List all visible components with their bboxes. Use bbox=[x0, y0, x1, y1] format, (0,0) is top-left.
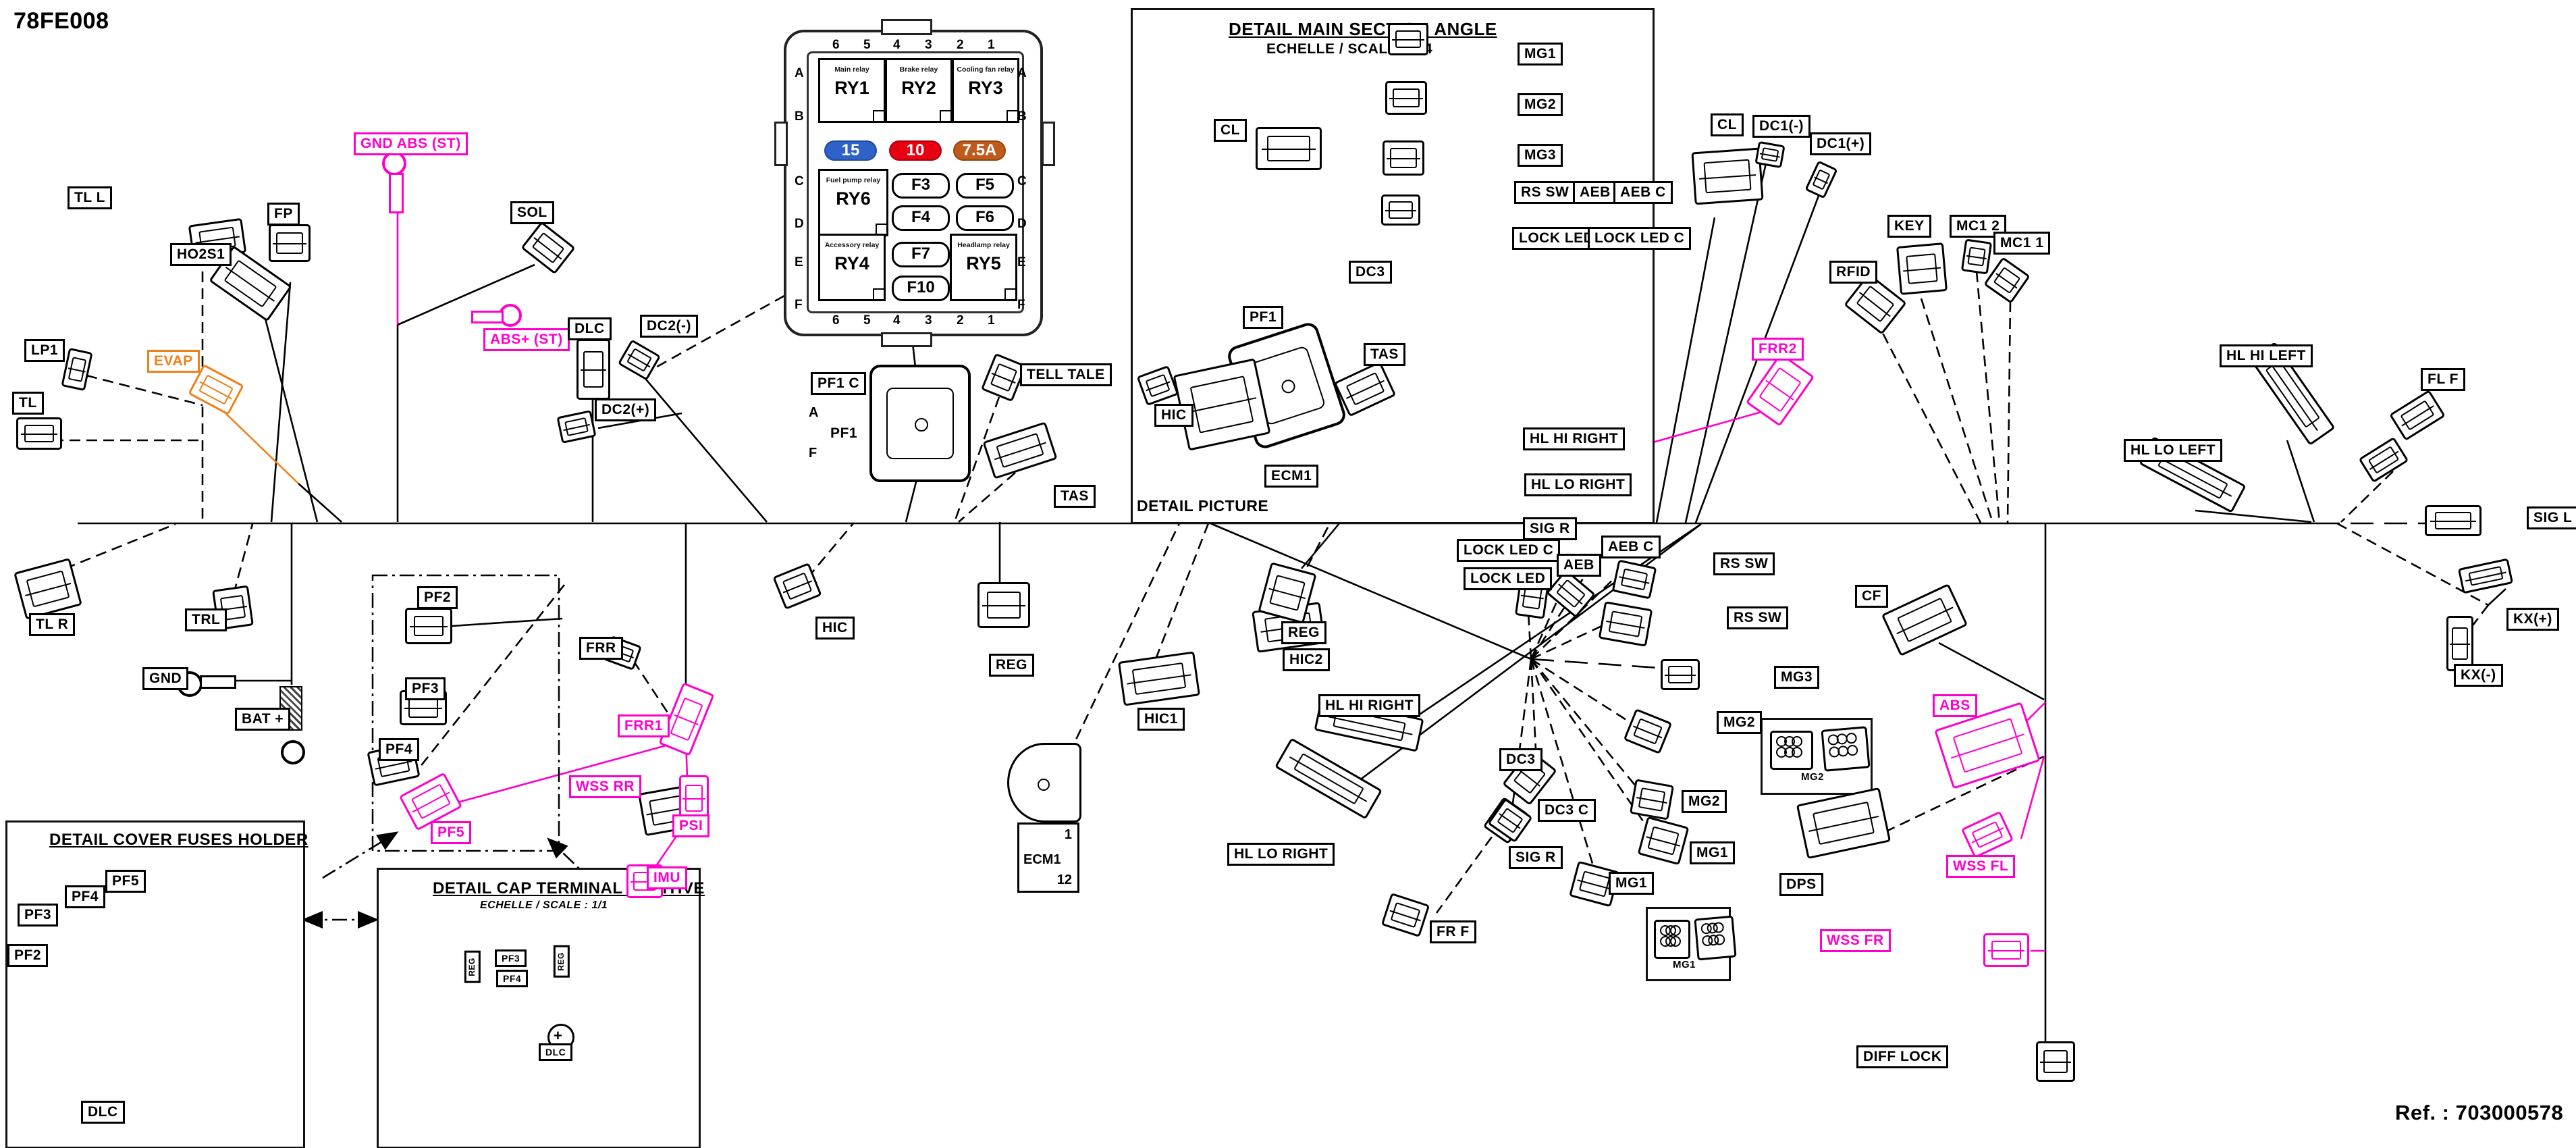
label-hic-82: HIC bbox=[1154, 404, 1193, 427]
label-sig-l-27: SIG L bbox=[2527, 506, 2576, 529]
label-diff-lock-69: DIFF LOCK bbox=[1856, 1045, 1948, 1068]
row-letter-F: F bbox=[1017, 298, 1025, 313]
connector-43 bbox=[1691, 148, 1763, 205]
connector-83 bbox=[1770, 731, 1813, 770]
pin-dot bbox=[1846, 733, 1857, 744]
relay-ry6: Fuel pump relayRY6 bbox=[818, 169, 888, 236]
fnum-bot-1: 1 bbox=[988, 313, 995, 328]
label-pf2-34: PF2 bbox=[417, 586, 458, 609]
label-pf4-36: PF4 bbox=[379, 738, 419, 761]
label-mg1-71: MG1 bbox=[1518, 43, 1563, 66]
detail-cap-scale: ECHELLE / SCALE : 1/1 bbox=[480, 899, 608, 912]
label-reg-98: REG bbox=[554, 945, 570, 978]
label-hic-43: HIC bbox=[815, 617, 855, 640]
connector-44 bbox=[1754, 141, 1785, 168]
relay-ry4: Accessory relayRY4 bbox=[818, 234, 886, 301]
fnum-bot-5: 5 bbox=[863, 313, 871, 328]
relay-ry5: Headlamp relayRY5 bbox=[950, 234, 1017, 301]
fnum-bot-4: 4 bbox=[893, 313, 901, 328]
label-pf3-91: PF3 bbox=[18, 904, 58, 927]
connector-7 bbox=[389, 173, 404, 213]
connector-17 bbox=[977, 582, 1030, 628]
label-pf2-92: PF2 bbox=[7, 944, 48, 967]
label-mg2-62: MG2 bbox=[1682, 790, 1727, 813]
label-kx-29: KX(-) bbox=[2454, 664, 2503, 687]
label-ho2s1-3: HO2S1 bbox=[170, 243, 232, 266]
connector-75 bbox=[1383, 140, 1424, 176]
label-dlc-93: DLC bbox=[81, 1101, 125, 1124]
relay-name: RY2 bbox=[887, 78, 950, 99]
wire-59 bbox=[442, 619, 562, 627]
label-fl-f-25: FL F bbox=[2421, 368, 2465, 391]
connector-84 bbox=[1821, 726, 1870, 772]
label-sol-5: SOL bbox=[510, 201, 554, 224]
label-tl-l-1: TL L bbox=[68, 186, 112, 209]
label-aeb-c-76: AEB C bbox=[1613, 181, 1673, 204]
fuse-relay-panel: 665544332211AABBCCDDEEFFMain relayRY1Bra… bbox=[780, 20, 1047, 343]
fuse-slot-f10: F10 bbox=[892, 276, 950, 301]
label-hl-lo-right-48: HL LO RIGHT bbox=[1227, 843, 1335, 866]
label-frr1-39: FRR1 bbox=[618, 714, 670, 737]
fuse-rating-chip-15: 15 bbox=[824, 140, 877, 161]
label-dc1-17: DC1(-) bbox=[1752, 115, 1810, 138]
label-bat-33: BAT + bbox=[235, 708, 290, 731]
label-ecm1-83: ECM1 bbox=[1264, 465, 1318, 488]
label-mg3-59: MG3 bbox=[1774, 666, 1819, 689]
label-fp-2: FP bbox=[267, 203, 300, 226]
connector-41 bbox=[1983, 933, 2029, 967]
label-dc2-12: DC2(+) bbox=[595, 398, 656, 421]
label-dc2-11: DC2(-) bbox=[640, 315, 698, 338]
label-cl-16: CL bbox=[1711, 113, 1744, 136]
fnum-bot-6: 6 bbox=[832, 313, 840, 328]
pin-dot bbox=[1670, 936, 1681, 947]
label-pf1-c-13: PF1 C bbox=[811, 372, 866, 395]
wire-14 bbox=[643, 375, 767, 522]
label-pf4-90: PF4 bbox=[65, 885, 105, 908]
label-abs-66: ABS bbox=[1933, 694, 1977, 717]
label-detail-picture-88: DETAIL PICTURE bbox=[1137, 497, 1268, 515]
relay-screw bbox=[873, 110, 885, 122]
wire-69 bbox=[1939, 643, 2044, 700]
connector-32 bbox=[1661, 659, 1700, 690]
row-letter-C: C bbox=[1017, 174, 1027, 189]
label-sig-r-87: SIG R bbox=[1523, 517, 1577, 540]
ecm1-name: ECM1 bbox=[1023, 852, 1061, 868]
label-dc3-c-52: DC3 C bbox=[1538, 799, 1596, 822]
label-pf1-104: PF1 bbox=[830, 425, 857, 442]
label-hl-lo-right-86: HL LO RIGHT bbox=[1524, 473, 1632, 496]
label-mc1-1-21: MC1 1 bbox=[1993, 232, 2050, 255]
detail-main-title: DETAIL MAIN SECTION ANGLE bbox=[1229, 20, 1497, 40]
connector-42 bbox=[2036, 1041, 2075, 1082]
wire-18 bbox=[906, 479, 917, 522]
detail-cover-fuses-box: DETAIL COVER FUSES HOLDER bbox=[5, 820, 305, 1148]
row-letter-D: D bbox=[1017, 217, 1027, 232]
relay-sub-label: Accessory relay bbox=[820, 241, 884, 249]
label-rs-sw-57: RS SW bbox=[1713, 552, 1775, 575]
label-hl-lo-left-26: HL LO LEFT bbox=[2124, 439, 2222, 462]
connector-57 bbox=[2446, 616, 2473, 671]
label-frr2-23: FRR2 bbox=[1752, 338, 1804, 361]
wire-4 bbox=[86, 375, 203, 405]
connector-74 bbox=[1385, 81, 1427, 115]
wire-32 bbox=[1531, 659, 1669, 669]
fnum-bot-2: 2 bbox=[957, 313, 964, 328]
row-letter-C: C bbox=[795, 174, 804, 189]
fusebox-tab bbox=[1042, 122, 1055, 166]
connector-64 bbox=[405, 608, 452, 644]
label-pf5-37: PF5 bbox=[431, 821, 471, 844]
pin-dot bbox=[1714, 934, 1725, 945]
relay-name: RY6 bbox=[820, 188, 886, 209]
label-gnd-abs-st-4: GND ABS (ST) bbox=[354, 132, 468, 155]
label-a-102: A bbox=[809, 405, 819, 421]
label-mg3-73: MG3 bbox=[1518, 144, 1563, 167]
relay-screw bbox=[940, 110, 952, 122]
label-dlc-96: DLC bbox=[539, 1043, 572, 1061]
label-lock-led-54: LOCK LED bbox=[1464, 567, 1552, 590]
label-tl-r-30: TL R bbox=[29, 613, 75, 636]
fnum-top-5: 5 bbox=[863, 38, 871, 53]
relay-sub-label: Main relay bbox=[820, 66, 884, 74]
connector-86 bbox=[1694, 916, 1736, 961]
label-cf-60: CF bbox=[1855, 585, 1888, 608]
fuse-slot-f5: F5 bbox=[956, 173, 1014, 199]
connector-61 bbox=[200, 675, 236, 689]
label-gnd-32: GND bbox=[142, 667, 188, 690]
relay-ry3: Cooling fan relayRY3 bbox=[952, 58, 1019, 123]
label-reg-44: REG bbox=[989, 654, 1034, 677]
label-tas-15: TAS bbox=[1054, 485, 1096, 508]
label-lock-led-c-53: LOCK LED C bbox=[1457, 539, 1560, 562]
fnum-top-4: 4 bbox=[893, 38, 901, 53]
label-sig-r-49: SIG R bbox=[1509, 846, 1563, 869]
connector-63 bbox=[281, 740, 305, 764]
fusebox-tab bbox=[881, 19, 932, 35]
connector-48 bbox=[1961, 238, 1992, 274]
label-abs-st-9: ABS+ (ST) bbox=[483, 328, 570, 351]
wire-23 bbox=[1156, 523, 1208, 659]
pin-dot bbox=[1670, 925, 1681, 936]
label-rs-sw-58: RS SW bbox=[1727, 606, 1788, 629]
label-mg2-99: MG2 bbox=[1801, 771, 1824, 783]
label-frr-38: FRR bbox=[579, 637, 623, 660]
label-tell-tale-14: TELL TALE bbox=[1020, 363, 1112, 386]
relay-sub-label: Cooling fan relay bbox=[954, 66, 1017, 74]
pin-dot bbox=[1792, 736, 1802, 747]
label-reg-84: REG bbox=[1281, 621, 1326, 644]
wire-50 bbox=[2195, 511, 2311, 522]
wire-44 bbox=[1875, 319, 1981, 523]
wire-49 bbox=[2287, 440, 2314, 522]
connector-1 bbox=[269, 224, 311, 262]
wire-47 bbox=[2008, 301, 2010, 523]
connector-85 bbox=[1654, 920, 1690, 959]
label-mg2-61: MG2 bbox=[1717, 711, 1762, 734]
label-wss-fl-67: WSS FL bbox=[1946, 855, 2015, 878]
label-aeb-75: AEB bbox=[1573, 181, 1617, 204]
connector-76 bbox=[1381, 194, 1420, 226]
label-wss-rr-40: WSS RR bbox=[569, 775, 641, 798]
row-letter-D: D bbox=[795, 217, 804, 232]
fuse-slot-f7: F7 bbox=[892, 242, 950, 267]
label-imu-42: IMU bbox=[647, 866, 687, 889]
label-hl-hi-right-85: HL HI RIGHT bbox=[1523, 427, 1625, 450]
relay-name: RY5 bbox=[952, 253, 1015, 274]
label-hl-hi-right-47: HL HI RIGHT bbox=[1318, 694, 1420, 717]
label-rs-sw-74: RS SW bbox=[1514, 181, 1576, 204]
fuse-rating-chip-7.5a: 7.5A bbox=[953, 140, 1006, 161]
label-kx-28: KX(+) bbox=[2506, 608, 2559, 631]
row-letter-B: B bbox=[795, 109, 804, 124]
label-psi-41: PSI bbox=[672, 814, 709, 837]
wire-71 bbox=[2021, 756, 2044, 839]
wire-41 bbox=[1657, 217, 1715, 523]
label-f-103: F bbox=[809, 446, 817, 461]
connector-11 bbox=[576, 339, 610, 400]
relay-sub-label: Fuel pump relay bbox=[820, 176, 886, 184]
wire-33 bbox=[1531, 659, 1639, 728]
connector-4 bbox=[16, 417, 62, 450]
wire-37 bbox=[1531, 659, 1536, 762]
connector-21 bbox=[1007, 743, 1081, 823]
relay-sub-label: Headlamp relay bbox=[952, 241, 1015, 249]
label-dc3-79: DC3 bbox=[1349, 261, 1392, 284]
label-reg-97: REG bbox=[464, 951, 481, 983]
ecm1-pin-top: 1 bbox=[1065, 827, 1072, 843]
fnum-top-3: 3 bbox=[925, 38, 932, 53]
wire-54 bbox=[2488, 589, 2506, 605]
label-evap-7: EVAP bbox=[147, 350, 200, 373]
label-tl-8: TL bbox=[12, 392, 44, 415]
label-mg1-63: MG1 bbox=[1690, 841, 1735, 864]
label-dc1-18: DC1(+) bbox=[1810, 132, 1871, 155]
ecm1-pin-bottom: 12 bbox=[1057, 872, 1072, 888]
label-dc3-51: DC3 bbox=[1499, 748, 1542, 771]
connector-55 bbox=[2425, 505, 2481, 536]
label-mg1-64: MG1 bbox=[1609, 872, 1654, 895]
connector-10 bbox=[471, 311, 504, 323]
relay-sub-label: Brake relay bbox=[887, 66, 950, 74]
wire-20 bbox=[959, 473, 1015, 522]
label-78fe008-0: 78FE008 bbox=[14, 8, 109, 34]
label-mg2-72: MG2 bbox=[1518, 93, 1563, 116]
fnum-top-1: 1 bbox=[988, 38, 995, 53]
wire-51 bbox=[2341, 471, 2393, 522]
relay-screw bbox=[1007, 110, 1019, 122]
fusebox-tab bbox=[881, 332, 932, 347]
label-aeb-c-56: AEB C bbox=[1601, 536, 1661, 558]
relay-name: RY1 bbox=[820, 78, 884, 99]
label-dps-65: DPS bbox=[1779, 873, 1823, 896]
detail-cover-title: DETAIL COVER FUSES HOLDER bbox=[49, 831, 308, 850]
label-fr-f-50: FR F bbox=[1430, 920, 1476, 943]
label-key-19: KEY bbox=[1887, 215, 1931, 238]
relay-screw bbox=[1004, 288, 1017, 301]
fuse-slot-f6: F6 bbox=[956, 205, 1014, 231]
label-trl-31: TRL bbox=[185, 608, 227, 631]
detail-cap-terminal-box: DETAIL CAP TERMINAL POSITIVE ECHELLE / S… bbox=[377, 868, 701, 1148]
wire-55 bbox=[65, 524, 176, 569]
wire-56 bbox=[234, 524, 252, 594]
label-dlc-10: DLC bbox=[568, 317, 612, 340]
label-lp1-6: LP1 bbox=[24, 339, 65, 362]
label-pf3-35: PF3 bbox=[405, 677, 446, 700]
label-lock-led-c-78: LOCK LED C bbox=[1588, 227, 1691, 250]
connector-77 bbox=[1256, 127, 1322, 170]
label-hl-hi-left-24: HL HI LEFT bbox=[2220, 344, 2313, 367]
row-letter-F: F bbox=[795, 298, 803, 313]
pin-dot bbox=[1713, 922, 1724, 933]
label-mg1-100: MG1 bbox=[1673, 959, 1696, 970]
connector-14 bbox=[869, 365, 971, 482]
label-pf1-80: PF1 bbox=[1243, 306, 1283, 329]
relay-screw bbox=[873, 288, 885, 301]
label-hic2-46: HIC2 bbox=[1283, 648, 1330, 671]
connector-73 bbox=[1388, 23, 1428, 55]
label-wss-fr-68: WSS FR bbox=[1820, 929, 1891, 952]
relay-name: RY4 bbox=[820, 253, 884, 274]
pin-dot bbox=[1846, 744, 1858, 756]
row-letter-A: A bbox=[795, 66, 804, 81]
label-pf3-94: PF3 bbox=[495, 949, 527, 967]
connector-47 bbox=[1896, 242, 1948, 295]
ecm1-pin-box: ECM1 1 12 bbox=[1017, 823, 1079, 893]
label-aeb-55: AEB bbox=[1557, 554, 1601, 577]
label-pf5-89: PF5 bbox=[105, 870, 146, 893]
label-ref-703000578-101: Ref. : 703000578 bbox=[2395, 1101, 2563, 1125]
wire-6 bbox=[265, 316, 317, 522]
wire-8 bbox=[298, 484, 342, 522]
row-letter-E: E bbox=[795, 255, 803, 270]
label-cl-70: CL bbox=[1214, 119, 1247, 142]
pin-dot bbox=[1792, 747, 1802, 758]
label-rfid-22: RFID bbox=[1829, 261, 1877, 284]
fuse-slot-f3: F3 bbox=[892, 173, 950, 199]
label-pf4-95: PF4 bbox=[496, 970, 528, 987]
fnum-top-6: 6 bbox=[832, 38, 840, 53]
fnum-top-2: 2 bbox=[957, 38, 964, 53]
fuse-slot-f4: F4 bbox=[892, 205, 950, 231]
fnum-bot-3: 3 bbox=[925, 313, 932, 328]
wire-22 bbox=[807, 523, 853, 578]
relay-ry2: Brake relayRY2 bbox=[885, 58, 952, 123]
label-tas-81: TAS bbox=[1364, 343, 1405, 366]
wiring-diagram-canvas: 78FE008 DETAIL MAIN SECTION ANGLE ECHELL… bbox=[0, 0, 2576, 1148]
fuse-rating-chip-10: 10 bbox=[889, 140, 942, 161]
label-hic1-45: HIC1 bbox=[1137, 708, 1185, 731]
relay-name: RY3 bbox=[954, 78, 1017, 99]
connector-34 bbox=[1630, 779, 1674, 820]
wire-7 bbox=[221, 409, 298, 484]
row-letter-E: E bbox=[1017, 255, 1026, 270]
fusebox-tab bbox=[774, 122, 788, 166]
relay-ry1: Main relayRY1 bbox=[818, 58, 886, 123]
